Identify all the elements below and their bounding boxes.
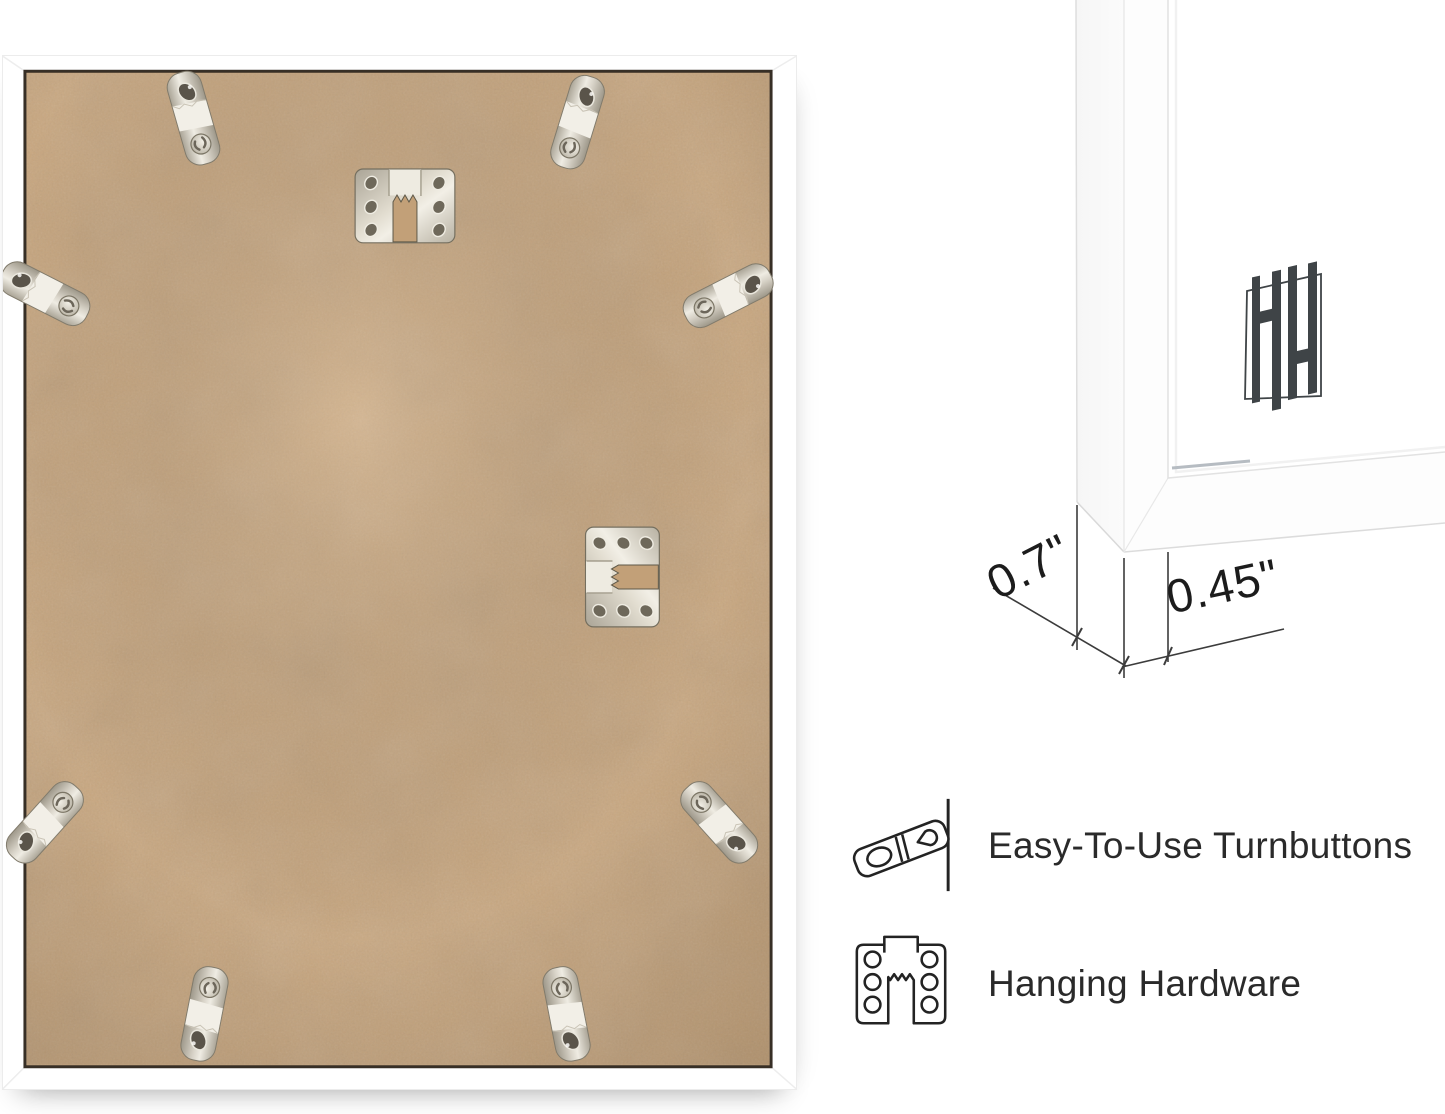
frame-corner-3d xyxy=(1076,0,1445,552)
product-image: 0.7" 0.45" Easy-To-Use Turnbuttons xyxy=(0,0,1445,1114)
feature-label: Hanging Hardware xyxy=(988,963,1301,1005)
feature-label: Easy-To-Use Turnbuttons xyxy=(988,825,1412,867)
turnbutton-icon xyxy=(848,792,956,900)
feature-turnbuttons: Easy-To-Use Turnbuttons xyxy=(848,792,1412,900)
hh-logo xyxy=(1245,260,1321,415)
frame-corner-diagram: 0.7" 0.45" xyxy=(980,0,1445,710)
depth-label: 0.7" xyxy=(980,523,1079,609)
frame-back-photo xyxy=(2,55,797,1090)
dimension-ticks xyxy=(1072,628,1172,674)
frame-side-face xyxy=(1076,0,1124,552)
width-label: 0.45" xyxy=(1162,548,1284,623)
feature-hanging-hardware: Hanging Hardware xyxy=(848,930,1301,1038)
hh-logo-bars xyxy=(1252,260,1317,415)
hanging-hardware-icon xyxy=(848,930,956,1038)
dimension-line-width xyxy=(1122,629,1284,667)
sawtooth-hanger-right xyxy=(586,527,660,627)
sawtooth-hanger-top xyxy=(355,169,455,243)
